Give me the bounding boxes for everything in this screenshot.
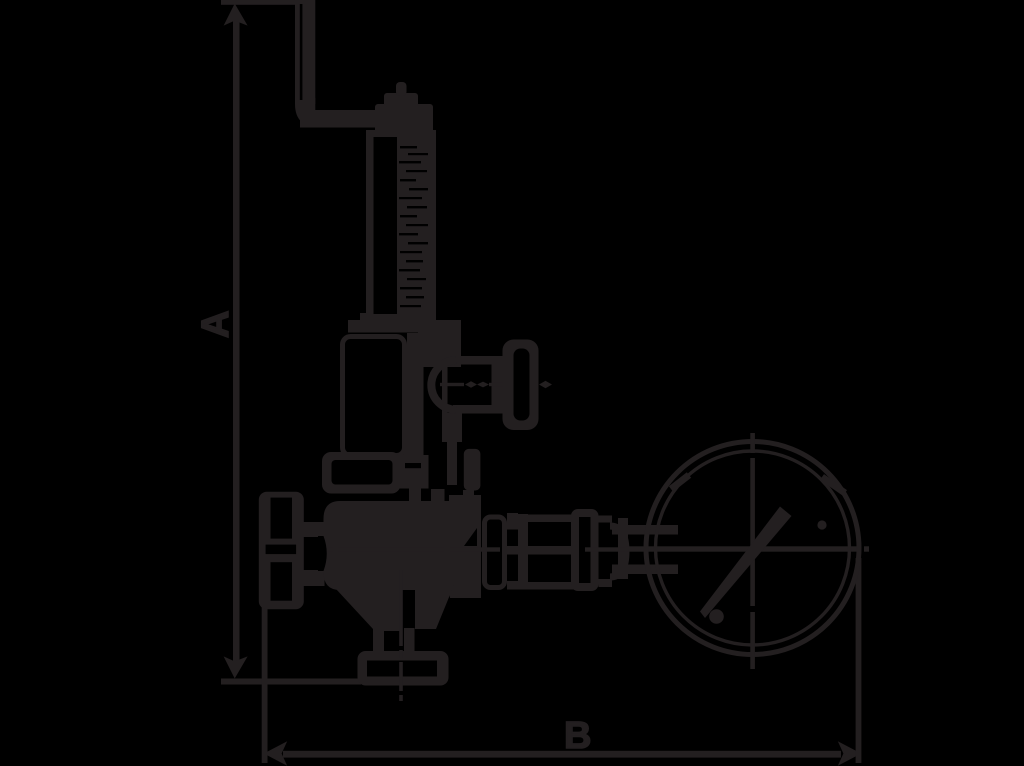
svg-text:A: A [195,311,237,338]
svg-text:B: B [564,715,591,757]
